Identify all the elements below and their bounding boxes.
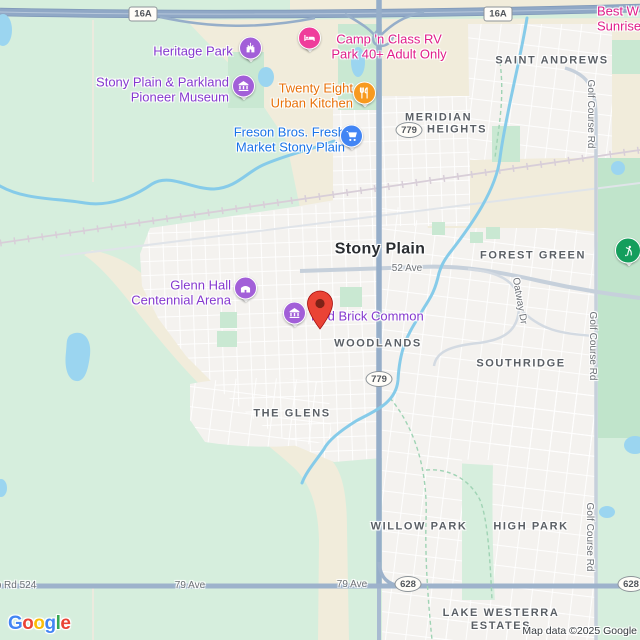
golf-course-icon-glyph (615, 238, 640, 264)
pioneer-museum-icon[interactable] (232, 75, 256, 105)
grocery-store-icon[interactable] (340, 125, 364, 155)
google-logo-letter: o (33, 613, 44, 634)
google-logo-letter: o (22, 613, 33, 634)
grocery-store-icon-glyph (340, 125, 363, 148)
poi-layer (0, 0, 640, 640)
heritage-park-icon-glyph (239, 37, 262, 60)
google-logo-letter: g (45, 613, 56, 634)
golf-course-icon[interactable] (615, 238, 640, 268)
google-logo-letter: e (60, 613, 70, 634)
red-brick-common-icon-glyph (283, 302, 306, 325)
red-brick-common-icon[interactable] (283, 302, 307, 332)
rv-park-lodging-icon[interactable] (298, 27, 322, 57)
arena-icon[interactable] (234, 277, 258, 307)
pioneer-museum-icon-glyph (232, 75, 255, 98)
map-attribution: Map data ©2025 Google (522, 625, 637, 637)
restaurant-icon[interactable] (353, 82, 377, 112)
rv-park-lodging-icon-glyph (298, 27, 321, 50)
arena-icon-glyph (234, 277, 257, 300)
heritage-park-icon[interactable] (239, 37, 263, 67)
destination-pin[interactable] (307, 290, 334, 330)
map-canvas[interactable]: 16A16A779779628628Stony PlainSAINT ANDRE… (0, 0, 640, 640)
google-logo[interactable]: Google (8, 613, 70, 635)
restaurant-icon-glyph (353, 82, 376, 105)
google-logo-letter: G (8, 613, 22, 634)
